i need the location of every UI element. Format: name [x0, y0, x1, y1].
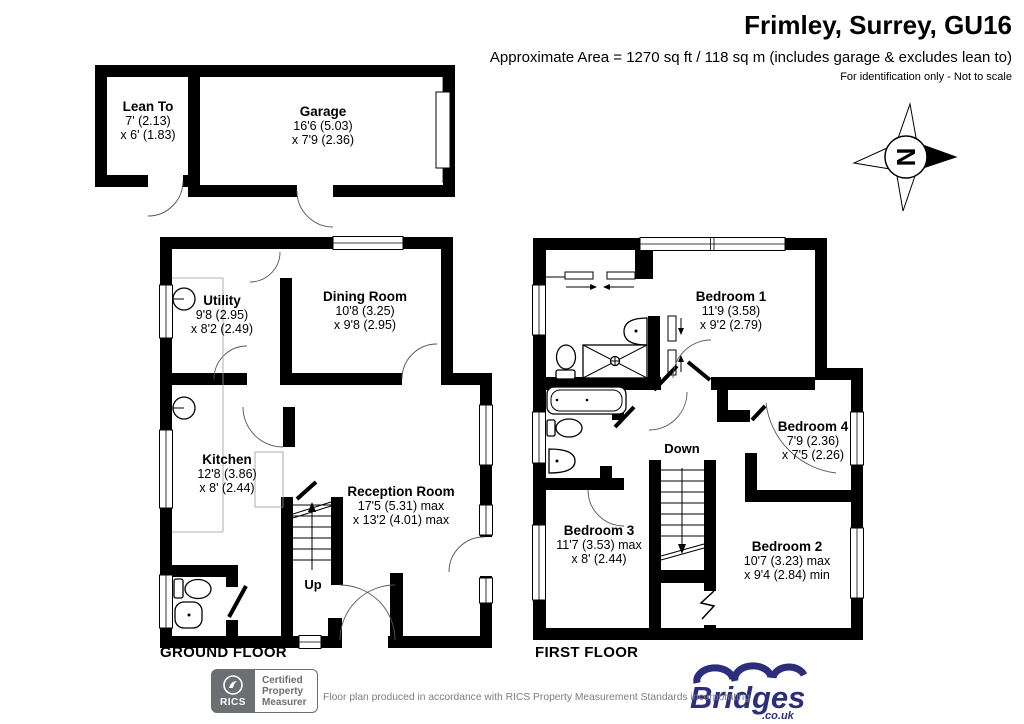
room-label-bedroom-2: Bedroom 2 10'7 (3.23) max x 9'4 (2.84) m… — [744, 540, 830, 582]
room-label-reception-room: Reception Room 17'5 (5.31) max x 13'2 (4… — [347, 485, 454, 527]
rics-brand-text: RICS — [220, 697, 246, 708]
lean-to-door-arc — [148, 181, 183, 216]
kitchen-door-arc — [243, 407, 283, 447]
footer-disclaimer: Floor plan produced in accordance with R… — [323, 669, 750, 724]
bedroom1-door-arc — [673, 340, 711, 378]
wc-door-leaf — [229, 586, 246, 617]
room-label-lean-to: Lean To 7' (2.13) x 6' (1.83) — [120, 100, 175, 142]
hall-door-arc — [340, 585, 395, 640]
first-wc-basin-icon — [549, 449, 575, 473]
shower-icon — [583, 345, 647, 378]
first-wc-toilet-icon — [547, 419, 582, 437]
reception-garden-door-arc — [449, 537, 484, 572]
agent-logo-suffix: .co.uk — [762, 710, 795, 722]
compass-north-letter: N — [891, 148, 921, 167]
rics-certified-text: Certified Property Measurer — [255, 669, 318, 713]
room-label-utility: Utility 9'8 (2.95) x 8'2 (2.49) — [191, 294, 253, 336]
room-label-dining-room: Dining Room 10'8 (3.25) x 9'8 (2.95) — [323, 290, 407, 332]
staircase-down — [661, 468, 704, 560]
bedroom3-door-arc — [588, 490, 624, 526]
room-label-bedroom-3: Bedroom 3 11'7 (3.53) max x 8' (2.44) — [556, 524, 642, 566]
bedroom4-door-leaf — [752, 406, 765, 420]
understairs-door-leaf — [297, 482, 316, 499]
outbuilding-plan — [95, 65, 455, 227]
rics-certification-badge: RICS Certified Property Measurer — [211, 669, 318, 713]
utility-rear-door-arc — [250, 252, 280, 282]
sliding-wardrobe-icon — [546, 272, 635, 290]
bathroom-door-arc — [649, 392, 687, 430]
first-floor-label: FIRST FLOOR — [535, 644, 638, 661]
bedroom1-door-leaf — [688, 362, 710, 380]
bedroom2-door-zigzag — [701, 591, 714, 619]
garage-door-panel — [436, 77, 450, 183]
room-label-garage: Garage 16'6 (5.03) x 7'9 (2.36) — [292, 105, 354, 147]
compass-rose: N — [854, 104, 956, 211]
ground-floor-label: GROUND FLOOR — [160, 644, 287, 661]
wc-basin-icon — [175, 602, 202, 628]
floorplan-page: Frimley, Surrey, GU16 Approximate Area =… — [0, 0, 1024, 724]
front-door-arc — [340, 585, 395, 640]
garage-door-arc — [297, 191, 333, 227]
staircase-up — [293, 502, 331, 570]
footer-disclaimer-line: Floor plan produced in accordance with R… — [323, 692, 750, 703]
kitchen-sink-icon — [172, 397, 195, 419]
rics-emblem-icon — [222, 674, 244, 696]
stairs-up-label: Up — [304, 577, 321, 592]
bathroom-toilet-icon — [556, 345, 576, 379]
room-label-bedroom-1: Bedroom 1 11'9 (3.58) x 9'2 (2.79) — [696, 290, 767, 332]
dining-door-arc — [402, 344, 437, 379]
bath-icon — [547, 387, 626, 414]
stairs-down-label: Down — [664, 441, 699, 456]
wc-toilet-icon — [174, 579, 211, 599]
room-label-kitchen: Kitchen 12'8 (3.86) x 8' (2.44) — [197, 453, 256, 495]
room-label-bedroom-4: Bedroom 4 7'9 (2.36) x 7'5 (2.26) — [778, 420, 849, 462]
bathroom-basin-icon — [624, 318, 647, 345]
rics-logo: RICS — [211, 669, 255, 713]
bridge-arch-icon — [773, 667, 804, 678]
